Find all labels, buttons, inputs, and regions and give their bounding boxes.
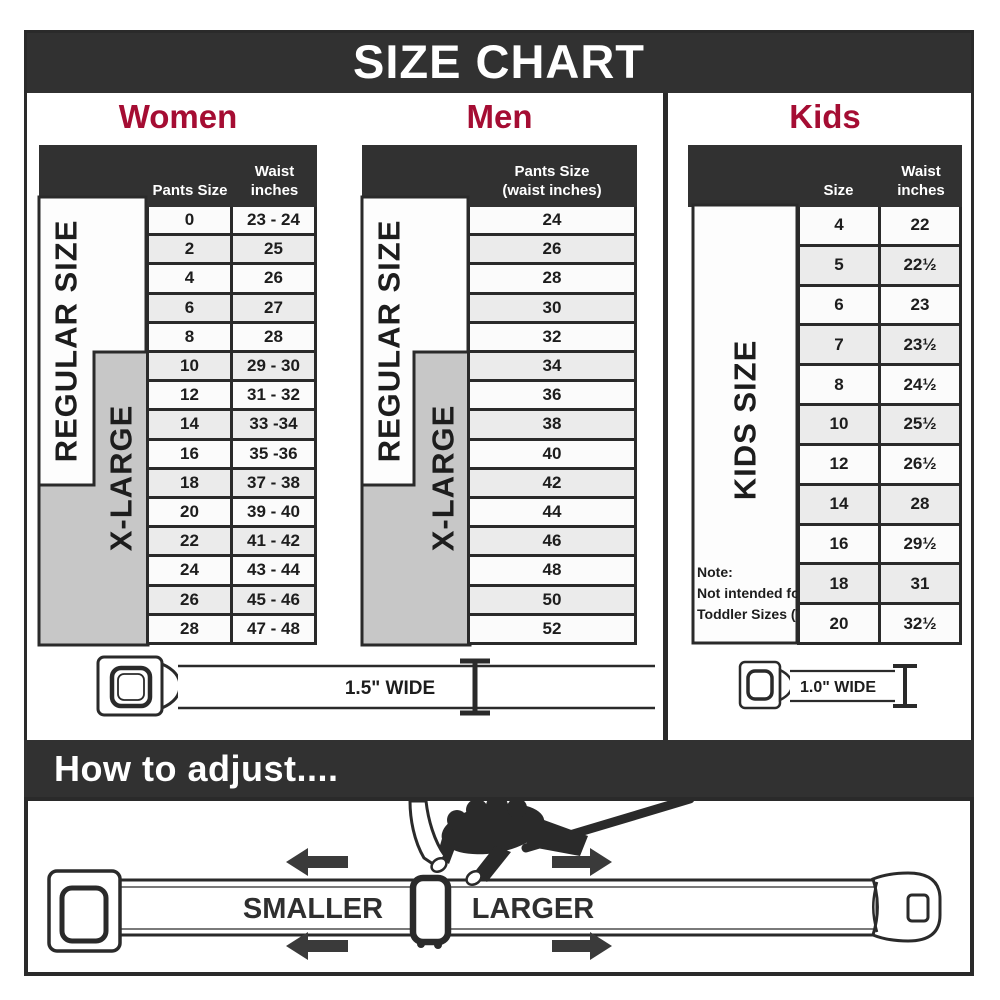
table-cell: 33 -34	[233, 411, 314, 437]
index-finger	[410, 801, 445, 866]
table-cell: 10	[800, 406, 878, 443]
table-cell: 25½	[881, 406, 959, 443]
table-cell: 24½	[881, 366, 959, 403]
kids-table-header: Size Waistinches	[688, 145, 962, 207]
hand-icon	[410, 801, 588, 888]
kids-section-title: Kids	[688, 97, 962, 137]
table-cell: 29 - 30	[233, 353, 314, 379]
table-cell: 41 - 42	[233, 528, 314, 554]
table-cell: 50	[470, 587, 634, 613]
table-cell: 12	[149, 382, 230, 408]
table-cell: 23	[881, 287, 959, 324]
buckle-latch-icon	[162, 664, 180, 708]
table-cell: 24	[149, 557, 230, 583]
table-cell: 5	[800, 247, 878, 284]
belt-slider	[413, 878, 448, 942]
women-size-range-labels: REGULAR SIZE X-LARGE	[36, 195, 151, 650]
table-cell: 40	[470, 441, 634, 467]
men-section-title: Men	[362, 97, 637, 137]
adjust-illustration: SMALLER LARGER	[28, 801, 970, 972]
table-cell: 31 - 32	[233, 382, 314, 408]
table-cell: 38	[470, 411, 634, 437]
table-cell: 27	[233, 295, 314, 321]
table-cell: 28	[149, 616, 230, 642]
table-cell: 6	[800, 287, 878, 324]
table-cell: 31	[881, 565, 959, 602]
table-cell: 25	[233, 236, 314, 262]
table-cell: 14	[800, 486, 878, 523]
table-cell: 30	[470, 295, 634, 321]
table-cell: 22	[881, 207, 959, 244]
table-cell: 32	[470, 324, 634, 350]
table-cell: 10	[149, 353, 230, 379]
table-cell: 26	[470, 236, 634, 262]
table-cell: 8	[800, 366, 878, 403]
women-col-pants-size: Pants Size	[148, 181, 232, 200]
table-cell: 20	[800, 605, 878, 642]
table-cell: 18	[149, 470, 230, 496]
table-cell: 20	[149, 499, 230, 525]
how-to-adjust-bar: How to adjust....	[24, 740, 974, 797]
size-chart-infographic: SIZE CHART Women Pants Size Waistinches …	[0, 0, 1000, 1000]
table-cell: 18	[800, 565, 878, 602]
smaller-label: SMALLER	[243, 893, 383, 925]
table-cell: 43 - 44	[233, 557, 314, 583]
adult-belt-illustration: 1.5" WIDE	[95, 650, 660, 720]
table-cell: 28	[470, 265, 634, 291]
table-cell: 46	[470, 528, 634, 554]
section-divider	[663, 93, 668, 740]
women-regular-label: REGULAR SIZE	[49, 220, 84, 463]
table-cell: 45 - 46	[233, 587, 314, 613]
women-size-table: 023 - 24 225 426 627 828 1029 - 30 1231 …	[146, 207, 317, 645]
table-cell: 7	[800, 326, 878, 363]
men-size-table: 24 26 28 30 32 34 36 38 40 42 44 46 48 5…	[467, 207, 637, 645]
table-cell: 22	[149, 528, 230, 554]
table-cell: 22½	[881, 247, 959, 284]
kids-belt-illustration: 1.0" WIDE	[735, 650, 935, 720]
table-cell: 12	[800, 446, 878, 483]
table-cell: 8	[149, 324, 230, 350]
table-cell: 32½	[881, 605, 959, 642]
table-cell: 0	[149, 207, 230, 233]
table-cell: 52	[470, 616, 634, 642]
table-cell: 28	[233, 324, 314, 350]
women-section-title: Women	[39, 97, 317, 137]
arrow-left-icon	[286, 848, 348, 876]
table-cell: 28	[881, 486, 959, 523]
table-cell: 4	[800, 207, 878, 244]
belt-tip-slot	[908, 895, 928, 921]
kids-col-size: Size	[797, 181, 880, 200]
table-cell: 37 - 38	[233, 470, 314, 496]
kids-size-table: 422 522½ 623 723½ 824½ 1025½ 1226½ 1428 …	[797, 207, 962, 645]
larger-label: LARGER	[472, 893, 595, 925]
table-cell: 35 -36	[233, 441, 314, 467]
adjust-illustration-box: SMALLER LARGER	[24, 797, 974, 976]
table-cell: 23 - 24	[233, 207, 314, 233]
kids-col-waist: Waistinches	[880, 162, 962, 200]
belt-width-label: 1.0" WIDE	[800, 679, 876, 696]
kids-side-label: KIDS SIZE	[728, 340, 763, 501]
women-col-waist: Waistinches	[232, 162, 317, 200]
how-to-adjust-heading: How to adjust....	[54, 748, 339, 790]
table-cell: 26	[149, 587, 230, 613]
men-size-range-labels: REGULAR SIZE X-LARGE	[359, 195, 477, 650]
table-cell: 2	[149, 236, 230, 262]
table-cell: 34	[470, 353, 634, 379]
table-cell: 14	[149, 411, 230, 437]
table-cell: 39 - 40	[233, 499, 314, 525]
table-cell: 16	[800, 526, 878, 563]
men-xlarge-label: X-LARGE	[426, 405, 461, 552]
table-cell: 44	[470, 499, 634, 525]
table-cell: 48	[470, 557, 634, 583]
men-regular-label: REGULAR SIZE	[372, 220, 407, 463]
men-col-pants-size: Pants Size(waist inches)	[467, 162, 637, 200]
table-cell: 23½	[881, 326, 959, 363]
table-cell: 16	[149, 441, 230, 467]
table-cell: 42	[470, 470, 634, 496]
table-cell: 26	[233, 265, 314, 291]
table-cell: 4	[149, 265, 230, 291]
table-cell: 24	[470, 207, 634, 233]
width-measure-icon	[893, 666, 917, 706]
women-xlarge-label: X-LARGE	[104, 405, 139, 552]
belt-width-label: 1.5" WIDE	[345, 678, 435, 699]
table-cell: 36	[470, 382, 634, 408]
table-cell: 6	[149, 295, 230, 321]
kids-note: Note: Not intended for Toddler Sizes (T)	[697, 562, 797, 625]
table-cell: 26½	[881, 446, 959, 483]
table-cell: 29½	[881, 526, 959, 563]
seatbelt-buckle-icon	[740, 662, 780, 708]
table-cell: 47 - 48	[233, 616, 314, 642]
